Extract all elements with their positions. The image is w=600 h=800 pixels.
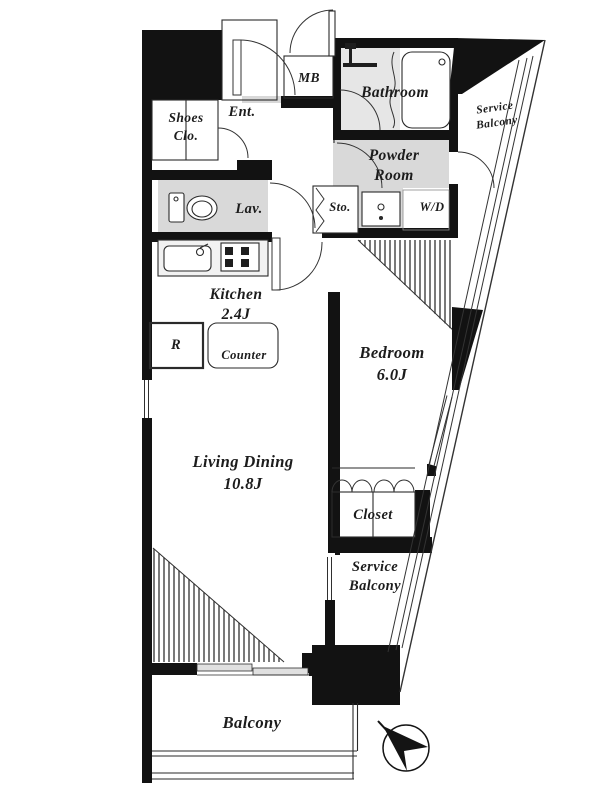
wall-bottom-block (312, 645, 400, 705)
wall-bath-powder (333, 130, 458, 140)
lavatory-label: Lav. (219, 200, 279, 219)
compass-north-tick (378, 721, 389, 733)
kitchen-sink (164, 246, 211, 271)
service-balcony-bottom-line1: Service (330, 558, 420, 577)
wall-sb-left-lower (325, 600, 335, 645)
entrance-recess (222, 20, 277, 100)
bedroom-window-underlay (432, 396, 451, 465)
meter-box-label: MB (285, 69, 333, 87)
room-label-service-balcony-bottom: Service Balcony (330, 558, 420, 596)
ld-west-window-gap (142, 380, 152, 418)
bedroom-label: Bedroom (332, 342, 452, 364)
refrigerator-label: R (151, 336, 201, 355)
bedroom-size: 6.0J (332, 364, 452, 386)
floor-plan: Shoes Clo. Ent. MB Bathroom Service Balc… (0, 0, 600, 800)
service-balcony-door-arc (458, 152, 494, 188)
burner-1 (225, 247, 233, 255)
room-label-closet: Closet (333, 506, 413, 525)
wall-topleft-block (147, 30, 222, 100)
wall-lav-top (152, 170, 272, 180)
room-label-kitchen: Kitchen 2.4J (176, 285, 296, 326)
burner-3 (225, 259, 233, 267)
entrance-label: Ent. (212, 103, 272, 122)
room-label-powder-room: Powder Room (334, 146, 454, 187)
kitchen-size: 2.4J (176, 305, 296, 325)
hall-door-arc (276, 242, 322, 290)
toilet-bowl (187, 196, 217, 220)
shoes-closet-line2: Clo. (150, 127, 222, 145)
burner-4 (241, 259, 249, 267)
mb-door-leaf (329, 11, 335, 56)
powder-room-line1: Powder (334, 146, 454, 166)
mb-door-arc (290, 10, 333, 53)
washbasin (362, 192, 400, 226)
kitchen-label: Kitchen (176, 285, 296, 305)
balcony-label: Balcony (192, 712, 312, 734)
room-label-washer-dryer: W/D (403, 199, 461, 216)
room-label-bedroom: Bedroom 6.0J (332, 342, 452, 386)
storage-label: Sto. (315, 199, 365, 216)
hall-door-leaf (272, 238, 280, 290)
wall-slider-right (309, 653, 325, 676)
powder-room-line2: Room (334, 166, 454, 186)
entrance-door-leaf (233, 40, 241, 95)
bathroom-label: Bathroom (335, 83, 455, 103)
room-label-balcony: Balcony (192, 712, 312, 734)
burner-2 (241, 247, 249, 255)
ld-sliding-door-2 (253, 668, 308, 675)
ld-sliding-door-1 (197, 664, 252, 671)
room-label-counter: Counter (209, 347, 279, 364)
north-compass-icon (378, 721, 429, 771)
wall-ld-balcony (152, 663, 197, 675)
room-label-living-dining: Living Dining 10.8J (153, 451, 333, 495)
closet-folding-doors (332, 480, 414, 492)
room-label-meter-box: MB (285, 69, 333, 87)
counter-label: Counter (209, 347, 279, 364)
washbasin-drain (380, 217, 383, 220)
room-label-entrance: Ent. (212, 103, 272, 122)
room-label-refrigerator: R (151, 336, 201, 355)
living-dining-size: 10.8J (153, 473, 333, 495)
washer-dryer-label: W/D (403, 199, 461, 216)
service-balcony-bottom-line2: Balcony (330, 577, 420, 596)
room-label-lavatory: Lav. (219, 200, 279, 219)
living-dining-label: Living Dining (153, 451, 333, 473)
shower-head (345, 43, 356, 49)
closet-label: Closet (333, 506, 413, 525)
shoes-closet-door-arc (218, 128, 248, 158)
shower-bar (343, 63, 377, 67)
room-label-bathroom: Bathroom (335, 83, 455, 103)
room-label-storage: Sto. (315, 199, 365, 216)
shower-pipe (349, 48, 352, 63)
